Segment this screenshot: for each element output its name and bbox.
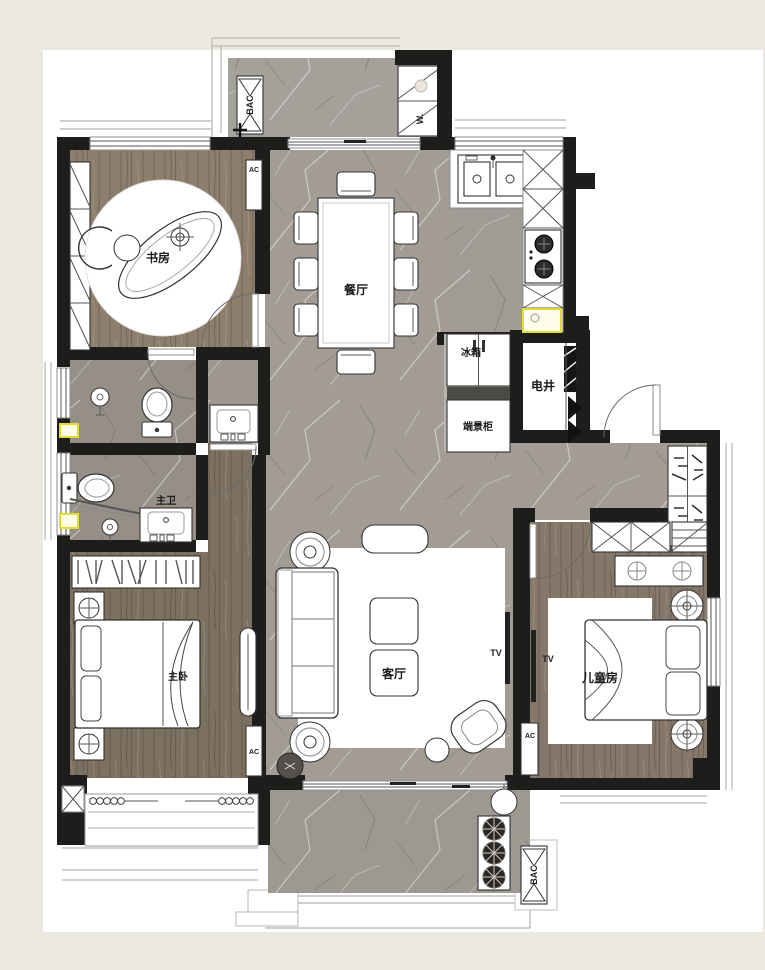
sofa bbox=[276, 568, 338, 718]
bay-window bbox=[62, 786, 258, 846]
toilet bbox=[142, 388, 172, 437]
ac-master-label: AC bbox=[249, 749, 259, 756]
tv-living bbox=[505, 612, 510, 684]
washer-label: W. bbox=[415, 114, 425, 125]
end-cabinet: 端景柜 bbox=[447, 400, 510, 452]
window bbox=[455, 137, 563, 150]
tv-kids bbox=[531, 630, 536, 702]
nightstand bbox=[74, 592, 104, 624]
room-label-study: 书房 bbox=[146, 250, 170, 265]
utility-shaft: 电井 bbox=[523, 343, 582, 443]
ac-unit-kids: AC bbox=[521, 723, 538, 775]
side-table bbox=[290, 532, 330, 572]
ac-unit-study: AC bbox=[246, 160, 262, 210]
window bbox=[707, 598, 720, 686]
coffee-table bbox=[370, 598, 418, 644]
tv-living-label: TV bbox=[490, 648, 502, 658]
living-room: 客厅 TV bbox=[276, 525, 512, 779]
toilet bbox=[62, 473, 114, 503]
side-table bbox=[425, 738, 449, 762]
kids-wardrobe bbox=[592, 522, 707, 552]
kitchen-lit-sink bbox=[523, 309, 561, 332]
room-label-master-bedroom: 主卧 bbox=[168, 670, 188, 683]
window bbox=[90, 137, 210, 150]
ac-unit-master: AC bbox=[246, 726, 262, 776]
hall-vanity bbox=[210, 405, 258, 442]
floor-plan-page: BAC W. bbox=[0, 0, 765, 970]
room-label-living: 客厅 bbox=[381, 666, 406, 681]
sink-vanity bbox=[140, 508, 192, 542]
bac-vent-bottom: BAC bbox=[521, 846, 547, 904]
shaft-label: 电井 bbox=[531, 378, 555, 393]
washing-machine: W. bbox=[398, 66, 440, 136]
room-label-kids: 儿童房 bbox=[581, 670, 618, 685]
planter-box bbox=[478, 816, 510, 890]
floor-light bbox=[60, 514, 78, 528]
end-cabinet-label: 端景柜 bbox=[463, 420, 493, 433]
plant bbox=[483, 866, 505, 888]
wardrobe bbox=[72, 556, 200, 588]
window bbox=[57, 368, 70, 418]
bac-top-label: BAC bbox=[245, 95, 255, 115]
stove bbox=[525, 230, 561, 283]
tv-kids-label: TV bbox=[542, 654, 554, 664]
bac-bottom-label: BAC bbox=[529, 865, 539, 885]
room-label-dining: 餐厅 bbox=[344, 282, 368, 297]
plant bbox=[483, 842, 505, 864]
nightstand bbox=[74, 728, 104, 760]
balcony-slider bbox=[303, 781, 507, 790]
ac-kids-label: AC bbox=[525, 733, 535, 740]
ac-study-label: AC bbox=[249, 167, 259, 174]
fridge-label: 冰箱 bbox=[461, 346, 481, 359]
fridge-box: 冰箱 bbox=[447, 334, 510, 386]
balcony-slider bbox=[288, 139, 420, 148]
room-label-master-bath: 主卫 bbox=[156, 494, 176, 507]
kids-desk bbox=[615, 556, 703, 586]
floor-plan: BAC W. bbox=[0, 0, 765, 970]
fridge-nook: 冰箱 端景柜 bbox=[444, 334, 510, 452]
bed bbox=[585, 620, 707, 720]
plant bbox=[483, 818, 505, 840]
wall bbox=[437, 50, 452, 145]
floor-light bbox=[60, 424, 78, 437]
dining-table bbox=[318, 198, 394, 348]
console-table bbox=[362, 525, 428, 553]
